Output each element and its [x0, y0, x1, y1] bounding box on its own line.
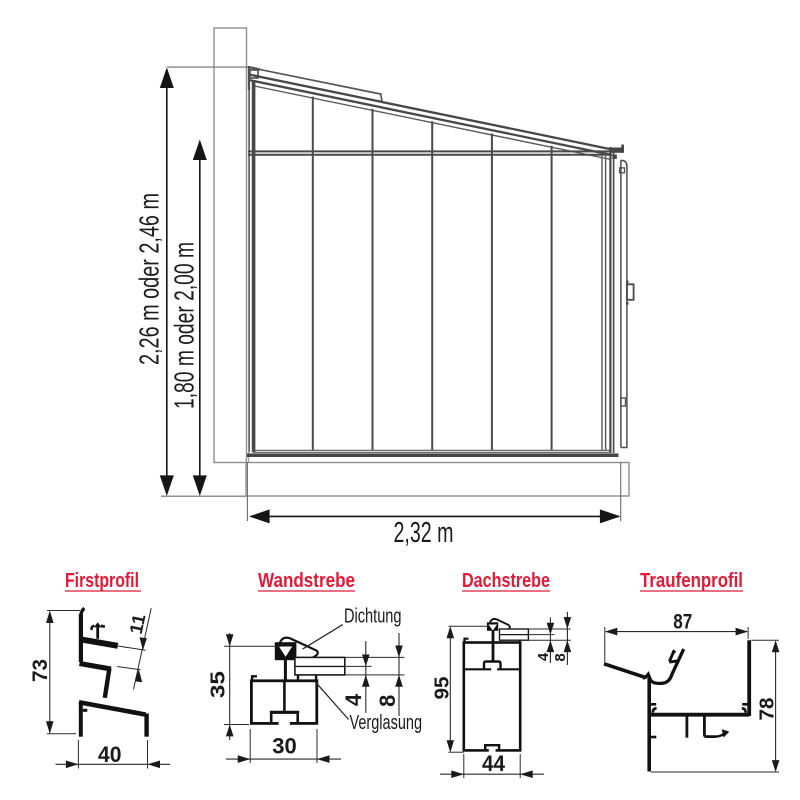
svg-text:11: 11 — [126, 612, 150, 636]
svg-text:2,32 m: 2,32 m — [394, 517, 454, 549]
svg-text:Verglasung: Verglasung — [350, 712, 423, 734]
svg-text:Dichtung: Dichtung — [344, 606, 402, 628]
svg-text:4: 4 — [341, 693, 366, 706]
svg-text:Wandstrebe: Wandstrebe — [258, 570, 355, 592]
svg-text:1,80 m oder 2,00 m: 1,80 m oder 2,00 m — [169, 242, 200, 409]
svg-text:40: 40 — [98, 742, 122, 767]
svg-text:Dachstrebe: Dachstrebe — [462, 570, 550, 592]
svg-text:78: 78 — [757, 698, 779, 721]
svg-text:8: 8 — [375, 695, 400, 707]
svg-text:30: 30 — [272, 734, 297, 759]
svg-text:8: 8 — [552, 653, 569, 661]
svg-text:73: 73 — [29, 659, 52, 682]
svg-text:2,26 m oder 2,46 m: 2,26 m oder 2,46 m — [134, 193, 165, 365]
svg-text:Firstprofil: Firstprofil — [65, 570, 139, 592]
svg-text:Traufenprofil: Traufenprofil — [640, 570, 743, 592]
svg-text:44: 44 — [482, 751, 506, 776]
svg-text:87: 87 — [673, 611, 692, 634]
svg-text:4: 4 — [535, 652, 552, 661]
svg-text:35: 35 — [208, 671, 230, 698]
svg-text:95: 95 — [432, 677, 454, 700]
